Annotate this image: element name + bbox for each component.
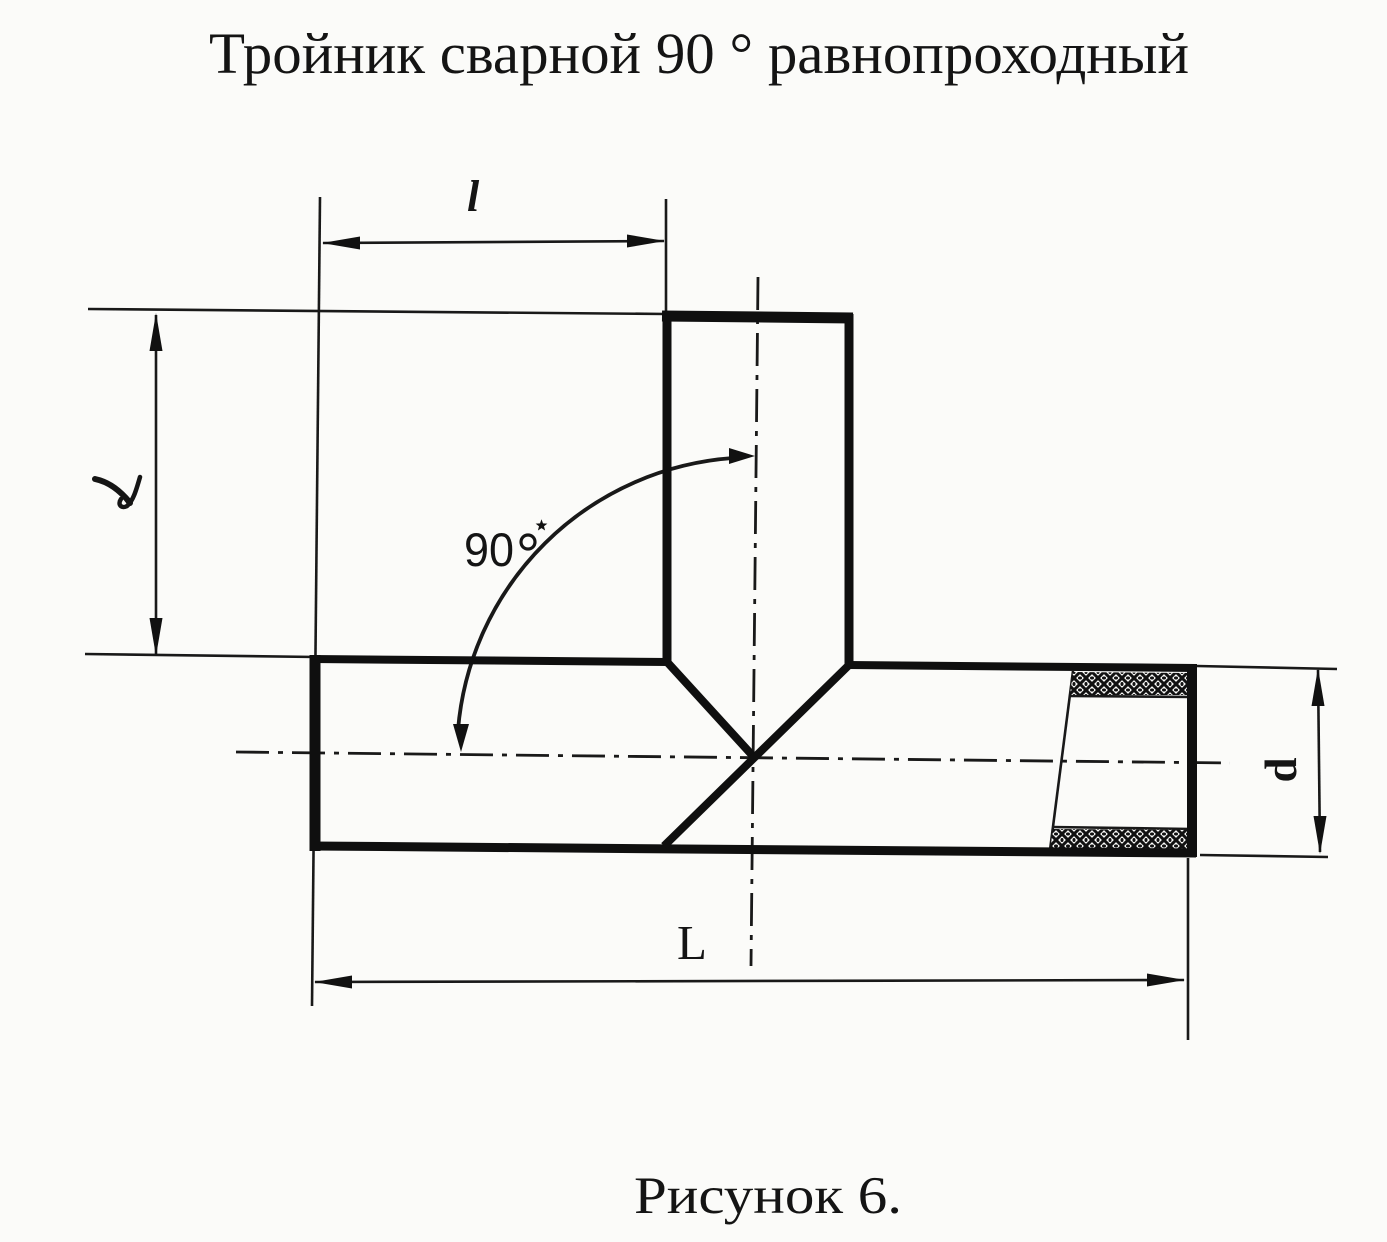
svg-text:l: l (467, 172, 480, 221)
svg-text:L: L (677, 915, 707, 970)
svg-text:90: 90 (464, 523, 514, 576)
svg-text:d: d (1256, 757, 1306, 782)
svg-text:Тройник сварной 90 ° равнопрох: Тройник сварной 90 ° равнопроходный (209, 21, 1189, 86)
svg-text:Рисунок 6.: Рисунок 6. (634, 1167, 902, 1225)
